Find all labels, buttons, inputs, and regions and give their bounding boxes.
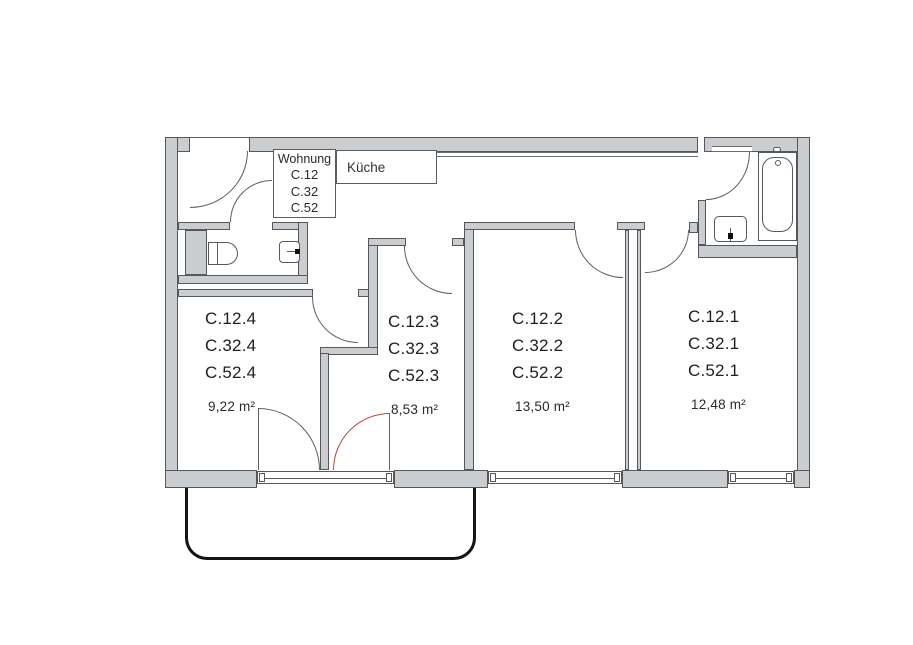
balcony-outline [185, 488, 476, 560]
room1-window [728, 471, 794, 484]
room2-top-wall [464, 222, 575, 230]
room3-left-wall-upper [368, 238, 378, 348]
room2-line-3: C.52.2 [512, 359, 570, 386]
toilet-seat-line [217, 243, 218, 264]
room12-partition-cap [617, 222, 645, 230]
room34-divider-lower [320, 353, 329, 470]
bath-bottom-wall [698, 245, 797, 258]
room3-door-arc [404, 246, 452, 294]
room1-door-stub [689, 222, 698, 233]
room2-left-wall [464, 222, 474, 470]
room2-window [488, 471, 622, 484]
room4-line-1: C.12.4 [205, 305, 256, 332]
room3-top-wall [368, 238, 406, 246]
room3-label: C.12.3 C.32.3 C.52.3 8,53 m² [388, 308, 439, 423]
kitchen-label-box: Küche [336, 150, 437, 184]
outer-wall-left [165, 137, 178, 488]
room3-line-2: C.32.3 [388, 335, 439, 362]
apartment-title-box: Wohnung C.12 C.32 C.52 [273, 149, 336, 218]
window-glass-line [490, 478, 620, 479]
wc-door-arc [230, 180, 272, 222]
room3-line-1: C.12.3 [388, 308, 439, 335]
window-glass-line [259, 478, 392, 479]
floor-plan-canvas: Wohnung C.12 C.32 C.52 Küche C.12.4 C.32… [0, 0, 913, 645]
apartment-title: Wohnung [278, 151, 331, 168]
room2-label: C.12.2 C.32.2 C.52.2 13,50 m² [512, 305, 570, 420]
bathtub-faucet [773, 147, 781, 152]
outer-wall-bottom-segment-1 [165, 470, 257, 488]
room3-area: 8,53 m² [388, 396, 439, 423]
bathroom-door-arc [706, 152, 750, 200]
window-end-cap [490, 473, 496, 482]
room1-door-arc [645, 230, 689, 273]
window-end-cap [614, 473, 620, 482]
room2-line-1: C.12.2 [512, 305, 570, 332]
balcony-french-window [257, 471, 394, 484]
bathtub-drain [775, 160, 781, 166]
room1-line-3: C.52.1 [688, 357, 746, 384]
room3-top-wall-stub [452, 238, 464, 246]
outer-wall-bottom-segment-2 [394, 470, 488, 488]
lobby-wc-wall-left [178, 222, 230, 230]
wc-duct-shaft [185, 230, 207, 275]
wc-washbasin-tap [295, 249, 300, 254]
outer-wall-right [797, 137, 810, 488]
room1-area: 12,48 m² [688, 391, 746, 418]
room1-line-1: C.12.1 [688, 303, 746, 330]
entrance-threshold-line [190, 137, 249, 138]
room4-area: 9,22 m² [205, 393, 256, 420]
balcony-door-arc-black [258, 408, 320, 470]
wc-bottom-wall [178, 275, 308, 284]
room1-label: C.12.1 C.32.1 C.52.1 12,48 m² [688, 303, 746, 418]
outer-wall-bottom-segment-3 [622, 470, 728, 488]
window-end-cap [259, 473, 265, 482]
outer-wall-bottom-segment-4 [794, 470, 810, 488]
bath-washbasin-tap [728, 233, 733, 239]
toilet-fixture [208, 242, 238, 265]
room12-partition-line-right [637, 230, 641, 470]
room4-line-3: C.52.4 [205, 359, 256, 386]
window-glass-line [730, 478, 792, 479]
room12-partition-line-left [625, 230, 629, 470]
kitchen-label: Küche [347, 160, 385, 175]
room2-area: 13,50 m² [512, 393, 570, 420]
room4-door-arc [312, 297, 358, 343]
balcony-door-arc-red [333, 413, 390, 470]
window-end-cap [786, 473, 792, 482]
room3-line-3: C.52.3 [388, 362, 439, 389]
kitchen-hall-upper-line [437, 152, 698, 157]
apartment-unit-c12: C.12 [291, 167, 318, 184]
window-end-cap [730, 473, 736, 482]
room4-label: C.12.4 C.32.4 C.52.4 9,22 m² [205, 305, 256, 420]
bath-left-wall [698, 200, 706, 245]
room2-line-2: C.32.2 [512, 332, 570, 359]
room1-line-2: C.32.1 [688, 330, 746, 357]
bathtub-inner [762, 157, 793, 232]
room2-door-arc [575, 230, 623, 278]
window-end-cap [386, 473, 392, 482]
apartment-unit-c52: C.52 [291, 200, 318, 217]
room4-top-wall [178, 289, 313, 297]
room4-line-2: C.32.4 [205, 332, 256, 359]
apartment-unit-c32: C.32 [291, 184, 318, 201]
